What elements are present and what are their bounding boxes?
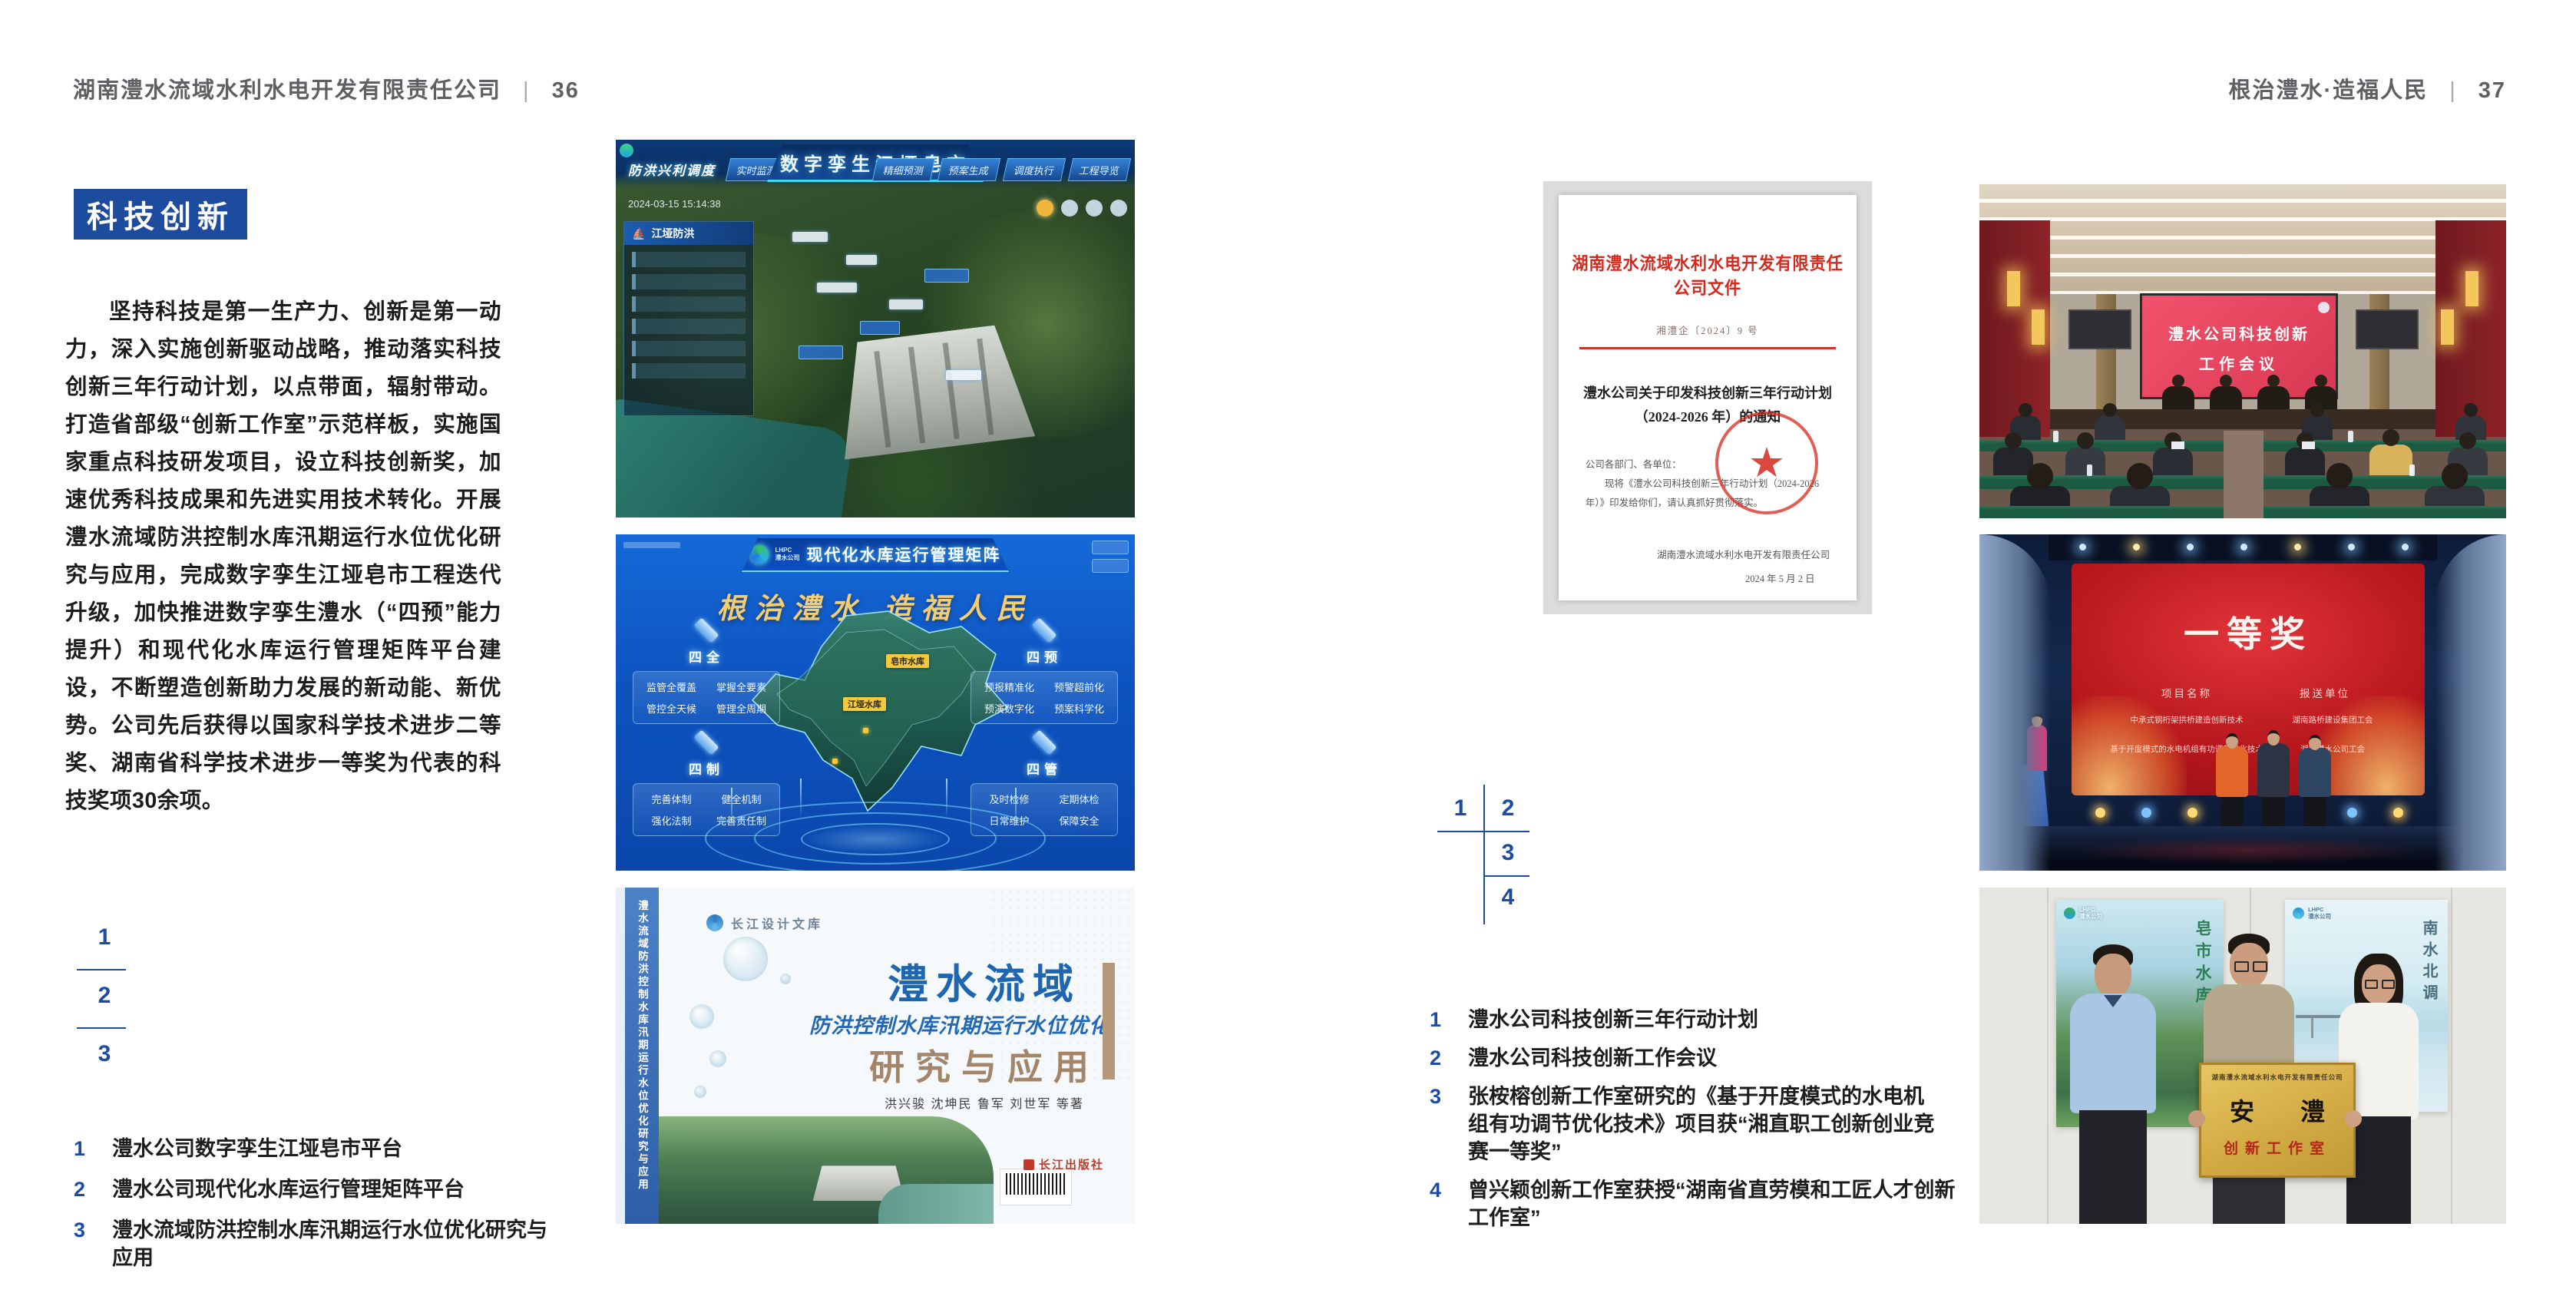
head [2019,403,2032,417]
official-document-image: 湖南澧水流域水利水电开发有限责任公司文件 湘澧企〔2024〕9 号 澧水公司关于… [1543,181,1872,614]
divider: | [523,78,531,103]
caption-row: 2澧水公司现代化水库运行管理矩阵平台 [74,1175,565,1203]
figure-index-1: 1 [91,924,118,951]
innovation-studio-plaque: 湖南澧水流域水利水电开发有限责任公司 安 澧 创新工作室 [2199,1063,2356,1178]
caption-row: 3澧水流域防洪控制水库汛期运行水位优化研究与应用 [74,1216,565,1271]
spotlight [2402,544,2409,551]
bridge-pier [2311,1018,2313,1038]
spotlight [2348,544,2355,551]
tv-screen [2356,309,2419,349]
screen-logo-icon [2318,302,2330,313]
spillway-line [977,339,994,435]
book-authors: 洪兴骏 沈坤民 鲁军 刘世军 等著 [838,1093,1130,1112]
digital-twin-dashboard-image: 防洪兴利调度 实时监测 洪水预报 防洪预警 数字孪生江垭皂市 精细预测 预案生成… [616,140,1135,517]
screen-reflection [2072,837,2425,865]
data-tag-blue [799,346,843,359]
sail-icon: ⛵ [632,227,645,240]
nav-button[interactable]: 精细预测 [872,158,935,181]
panel-item: 保障安全 [1046,813,1113,828]
logo-subtext: 澧水公司 [2308,913,2331,920]
window-button[interactable] [1092,541,1129,554]
light-pillar [731,788,732,828]
screen-title-line1: 澧水公司科技创新 [2142,322,2336,344]
head [2310,403,2324,417]
publisher-mark: 长江出版社 [1023,1156,1104,1172]
panel-row [632,319,746,334]
title-line-2: （2024-2026 年）的通知 [1559,405,1857,429]
head [2077,432,2094,449]
panel-item: 预案科学化 [1046,701,1113,716]
stage-frame-left [1979,534,2050,871]
caption-row: 1澧水公司数字孪生江垭皂市平台 [74,1135,565,1162]
wall-seam [2451,888,2452,1224]
head [2127,463,2153,489]
project-name: 中承式钢桁架拱桥建造创新技术 [2095,714,2279,726]
wall-seam [2047,888,2049,1224]
water-bottle [2053,431,2058,442]
column-heading: 报送单位 [2264,685,2386,700]
caption-number: 4 [1430,1176,1451,1232]
face [2095,954,2131,997]
tool-icon[interactable] [1110,200,1127,217]
head [2459,432,2476,449]
plaque-org-line: 湖南澧水流域水利水电开发有限责任公司 [2201,1073,2353,1082]
stage-frame-right [2435,534,2506,871]
panel-item: 掌握全要素 [708,679,775,694]
running-head-right: 根治澧水·造福人民|37 [2229,72,2506,104]
map-marker-dot [832,759,838,764]
caption-text: 澧水公司科技创新工作会议 [1468,1044,1717,1072]
company-name: 湖南澧水流域水利水电开发有限责任公司 [73,78,501,103]
panel-name: 四管 [971,759,1118,778]
spine-title: 澧水流域防洪控制水库汛期运行水位优化研究与应用 [634,900,650,1224]
panel-icon [1032,618,1057,643]
blue-polo-shirt [2070,994,2156,1113]
head [2309,735,2321,750]
bubble-decor [780,974,791,984]
mode-label: 防洪兴利调度 [628,160,716,179]
caption-number: 1 [1430,1006,1451,1033]
spotlight [2187,544,2194,551]
red-rule [1579,347,1836,349]
caption-list-right: 1澧水公司科技创新三年行动计划 2澧水公司科技创新工作会议 3张桉榕创新工作室研… [1430,1006,1959,1232]
tool-icon[interactable] [1086,200,1103,217]
head [2226,733,2238,749]
data-tag [846,255,877,265]
panel-title: 江垭防洪 [651,226,694,241]
head [2005,432,2022,449]
awardee-orange [2216,746,2248,797]
caption-number: 3 [1430,1083,1451,1165]
caption-text: 澧水流域防洪控制水库汛期运行水位优化研究与应用 [112,1216,565,1271]
date-line: 2024 年 5 月 2 日 [1600,570,1814,585]
water-bottle [2409,465,2415,476]
hand [2188,1110,2205,1127]
attendee [2065,448,2105,478]
plaque-subtitle: 创新工作室 [2201,1137,2353,1158]
panel-name: 四全 [633,646,780,666]
spillway-line [908,347,925,444]
panel-row [632,341,746,356]
panel-speaker [2210,386,2242,411]
wall-lamp [2007,271,2020,306]
panel-item: 预演数字化 [976,701,1043,716]
light-pillar [800,779,802,818]
panel-siquan: 四全 监管全覆盖 掌握全要素 管控全天候 管理全周期 [633,620,780,724]
lhpc-logo-icon [2293,908,2304,919]
glasses [2365,980,2395,989]
ripple-core [801,823,950,855]
glasses [2234,961,2267,972]
projection-screen: 澧水公司科技创新 工作会议 [2142,296,2336,397]
document-header: 湖南澧水流域水利水电开发有限责任公司文件 [1568,250,1848,299]
body-paragraph: 坚持科技是第一生产力、创新是第一动力，深入实施创新驱动战略，推动落实科技创新三年… [65,293,501,820]
head [2267,730,2280,746]
bubble-decor [689,1004,714,1029]
book-cover-image: 澧水流域防洪控制水库汛期运行水位优化研究与应用 长江设计文库 澧水流域 防洪控制… [616,888,1135,1224]
bubble-decor [723,937,768,981]
logo-subtext: 澧水公司 [775,554,800,562]
data-tag [817,283,857,293]
matrix-title: 现代化水库运行管理矩阵 [807,543,1001,566]
figure-index-3: 3 [91,1041,118,1067]
stage-light-glow [2095,808,2105,818]
award-ceremony-photo: 一等奖 项目名称 报送单位 中承式钢桁架拱桥建造创新技术 湖南路桥建设集团工会 … [1979,534,2506,871]
head [2027,463,2053,489]
signature: 湖南澧水流域水利水电开发有限责任公司 [1586,547,1830,561]
tv-screen [2068,309,2131,349]
barcode-stripes [1006,1173,1066,1195]
panel-siyu: 四预 预报精准化 预警超前化 预演数字化 预案科学化 [971,620,1118,724]
attendee [2153,448,2193,478]
unit-name: 湖南路桥建设集团工会 [2271,714,2394,726]
head [2383,429,2399,446]
data-tag [792,232,828,242]
head [2220,375,2232,387]
caption-number: 2 [1430,1044,1451,1072]
head [2464,403,2478,417]
ceiling-light-strips [1979,180,2506,296]
trousers [2079,1110,2147,1224]
matrix-platform-image: LHPC 澧水公司 现代化水库运行管理矩阵 根治澧水 造福人民 皂市水库 江垭水… [616,534,1135,871]
panel-item: 强化法制 [638,813,705,828]
poster-logo: LHPC 澧水公司 [2064,906,2102,920]
panel-item: 管理全周期 [708,701,775,716]
lens [2382,980,2395,989]
panel-icon [694,730,719,755]
lens [2234,961,2249,972]
caption-row: 3张桉榕创新工作室研究的《基于开度模式的水电机组有功调节优化技术》项目获“湘直职… [1430,1083,1959,1165]
caption-row: 1澧水公司科技创新三年行动计划 [1430,1006,1959,1033]
caption-text: 曾兴颖创新工作室获授“湖南省直劳模和工匠人才创新工作室” [1468,1176,1959,1232]
panel-card: 监管全覆盖 掌握全要素 管控全天候 管理全周期 [633,671,780,724]
unit-name: 湖南澧水公司工会 [2271,743,2394,755]
lens [2365,980,2378,989]
nav-button[interactable]: 预案生成 [937,158,1000,181]
panel-item: 健全机制 [708,792,775,806]
library-brand: 长江设计文库 [706,914,823,932]
lhpc-logo-icon [2064,908,2075,919]
panel-header: ⛵江垭防洪 [624,222,753,245]
dam-photo-strip [659,1116,994,1224]
page-number-left: 36 [552,78,580,103]
figure-index-2: 2 [1494,795,1522,822]
paper [2171,441,2184,449]
running-head-left: 湖南澧水流域水利水电开发有限责任公司|36 [73,72,580,104]
timestamp-placeholder [623,542,680,548]
index-divider [77,969,126,970]
innovation-studio-group-photo: LHPC 澧水公司 皂市水库 LHPC 澧水公司 南水北调 [1979,888,2506,1224]
document-page: 湖南澧水流域水利水电开发有限责任公司文件 湘澧企〔2024〕9 号 澧水公司关于… [1559,195,1857,600]
head [2267,375,2280,387]
light-pillar [946,779,947,818]
lens [2253,961,2267,972]
slogan: 根治澧水·造福人民 [2229,78,2429,103]
map-marker-label[interactable]: 江垭水库 [843,697,886,711]
app-logo-icon [620,144,633,157]
panel-item: 及时检修 [976,792,1043,806]
magazine-spread: 湖南澧水流域水利水电开发有限责任公司|36 根治澧水·造福人民|37 科技创新 … [0,0,2576,1306]
library-logo-icon [706,914,723,931]
panel-icon [694,618,719,643]
screen-title-line2: 工作会议 [2142,352,2336,374]
map-marker-dot [863,728,868,733]
head [2103,403,2117,417]
tan-accent-bar [1103,963,1115,1080]
ceiling [1979,180,2506,296]
nav-button[interactable]: 调度执行 [1003,158,1066,181]
panel-row [632,274,746,289]
caption-text: 澧水公司数字孪生江垭皂市平台 [112,1135,402,1162]
panel-item: 预报精准化 [976,679,1043,694]
caption-row: 2澧水公司科技创新工作会议 [1430,1044,1959,1072]
alert-icon[interactable] [1037,200,1053,217]
trousers [2346,1116,2411,1224]
tool-icon[interactable] [1061,200,1078,217]
panel-item: 定期体检 [1046,792,1113,806]
caption-list-left: 1澧水公司数字孪生江垭皂市平台 2澧水公司现代化水库运行管理矩阵平台 3澧水流域… [74,1135,565,1271]
divider: | [2449,78,2457,103]
awardee-navy [2299,748,2331,797]
book-title-main: 澧水流域 [846,952,1123,1010]
water-bottle [2348,431,2353,442]
barcode [1000,1169,1072,1205]
panel-item: 监管全覆盖 [638,679,705,694]
spillway-line [943,342,960,439]
stage-light-glow [2187,808,2197,818]
center-aisle [2224,431,2264,518]
attendee [2285,448,2325,478]
map-marker-label[interactable]: 皂市水库 [886,654,929,668]
logo-text: LHPC [775,547,800,554]
index-divider-vertical [1483,785,1485,924]
head [2326,463,2353,489]
timestamp: 2024-03-15 15:14:38 [628,198,721,210]
nav-button[interactable]: 工程导览 [1068,158,1131,181]
book-title-tail: 研究与应用 [846,1040,1123,1090]
plaque-name: 安 澧 [2201,1093,2353,1128]
caption-text: 张桉榕创新工作室研究的《基于开度模式的水电机组有功调节优化技术》项目获“湘直职工… [1468,1083,1944,1165]
water-bottle [2087,465,2092,476]
red-seal: ★ [1715,412,1818,514]
index-divider [77,1027,126,1029]
panel-row [632,296,746,312]
title-line-1: 澧水公司关于印发科技创新三年行动计划 [1559,382,1857,405]
caption-number: 3 [74,1216,95,1271]
figure-index-4: 4 [1494,884,1522,911]
logo-text-block: LHPC 澧水公司 [2079,906,2102,920]
logo-text: LHPC [2079,906,2102,913]
caption-text: 澧水公司现代化水库运行管理矩阵平台 [112,1175,465,1203]
caption-number: 2 [74,1175,95,1203]
data-tag-blue [860,321,900,335]
stage-light-glow [2393,808,2403,818]
flood-panel: ⛵江垭防洪 [623,221,754,416]
wall-lamp [2465,271,2478,306]
section-badge: 科技创新 [74,189,247,240]
logo-text-block: LHPC 澧水公司 [2308,906,2331,920]
panel-item: 预警超前化 [1046,679,1113,694]
wall-lamp [2032,309,2045,345]
poster-logo: LHPC 澧水公司 [2293,906,2331,920]
nav-right: 精细预测 预案生成 调度执行 工程导览 [875,158,1129,181]
attendee-yellow-jacket [2369,445,2412,478]
green-table-row [1979,506,2224,518]
document-title: 澧水公司关于印发科技创新三年行动计划 （2024-2026 年）的通知 [1559,382,1857,429]
logo-text-block: LHPC 澧水公司 [775,547,800,562]
panel-row [632,363,746,379]
book-title-sub: 防洪控制水库汛期运行水位优化 [794,1009,1126,1039]
matrix-header: LHPC 澧水公司 现代化水库运行管理矩阵 [742,538,1009,572]
green-table-row [2264,506,2506,518]
caption-number: 1 [74,1135,95,1162]
data-tag [889,299,923,309]
paper [2302,441,2315,449]
spotlight [2133,544,2140,551]
panel-speaker [2162,386,2194,411]
logo-text: LHPC [2308,906,2331,913]
panel-name: 四制 [633,759,780,778]
figure-index-3: 3 [1494,840,1522,866]
spillway-line [874,351,891,448]
star-icon: ★ [1748,442,1785,484]
library-name: 长江设计文库 [731,914,823,932]
logo-subtext: 澧水公司 [2079,913,2102,920]
publisher-name: 长江出版社 [1039,1156,1104,1172]
panel-name: 四预 [971,646,1118,666]
figure-index-1: 1 [1447,795,1474,822]
head [2442,463,2468,489]
panel-item: 完善体制 [638,792,705,806]
spotlight [2240,544,2247,551]
panel-row [632,252,746,267]
caption-text: 澧水公司科技创新三年行动计划 [1468,1006,1758,1033]
data-tag [946,370,981,380]
presenter-suit [2257,743,2290,797]
award-title: 一等奖 [2072,607,2425,657]
spotlight [2294,544,2301,551]
document-number: 湘澧企〔2024〕9 号 [1559,322,1857,337]
stage-light-glow [2347,808,2357,818]
stage-light-glow [2141,808,2151,818]
hand [2345,1110,2362,1127]
caption-row: 4曾兴颖创新工作室获授“湖南省直劳模和工匠人才创新工作室” [1430,1176,1959,1232]
poster-calligraphy: 南水北调 [2418,920,2440,1006]
light-pillar [1015,788,1017,828]
column-heading: 项目名称 [2125,685,2248,700]
river-shape [878,1184,994,1224]
head [2172,375,2184,387]
wall-lamp [2441,309,2454,345]
data-tag-blue [924,269,969,283]
meeting-photo: 澧水公司科技创新 工作会议 [1979,180,2506,518]
project-name: 基于开度模式的水电机组有功调节优化技术 [2095,743,2279,755]
bubble-decor [709,1050,726,1067]
led-screen: 一等奖 项目名称 报送单位 中承式钢桁架拱桥建造创新技术 湖南路桥建设集团工会 … [2072,564,2425,795]
window-button[interactable] [1092,559,1129,573]
publisher-logo-icon [1023,1159,1034,1170]
book-spine: 澧水流域防洪控制水库汛期运行水位优化研究与应用 [625,888,659,1224]
spotlight [2079,544,2086,551]
head [2315,375,2327,387]
panel-card: 预报精准化 预警超前化 预演数字化 预案科学化 [971,671,1118,724]
lhpc-logo-icon [750,545,769,564]
attendee [2095,415,2125,441]
panel-item: 管控全天候 [638,701,705,716]
page-number-right: 37 [2478,78,2506,103]
figure-index-2: 2 [91,983,118,1009]
index-divider [1485,875,1529,877]
panel-speaker [2257,386,2290,411]
bubble-decor [694,1086,706,1098]
panel-icon [1032,730,1057,755]
